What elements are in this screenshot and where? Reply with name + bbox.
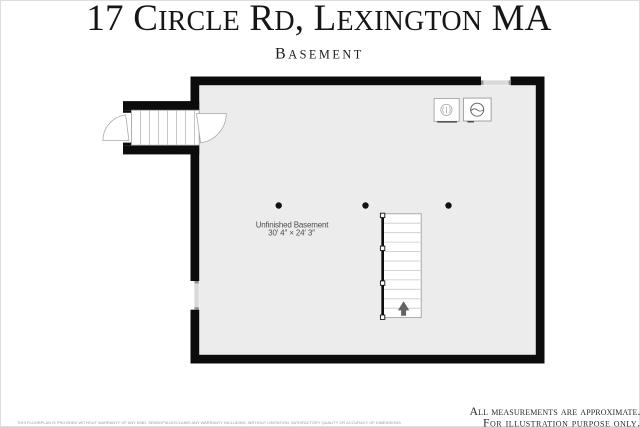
svg-text:BASEMENT: BASEMENT bbox=[275, 46, 364, 63]
svg-text:THIS FLOORPLAN IS PROVIDED WIT: THIS FLOORPLAN IS PROVIDED WITHOUT WARRA… bbox=[17, 420, 402, 425]
svg-text:30′ 4″ × 24′ 3″: 30′ 4″ × 24′ 3″ bbox=[268, 229, 315, 238]
svg-text:For illustration purpose only.: For illustration purpose only. bbox=[483, 416, 640, 427]
svg-text:17 CIRCLE RD, LEXINGTON MA: 17 CIRCLE RD, LEXINGTON MA bbox=[86, 0, 551, 39]
